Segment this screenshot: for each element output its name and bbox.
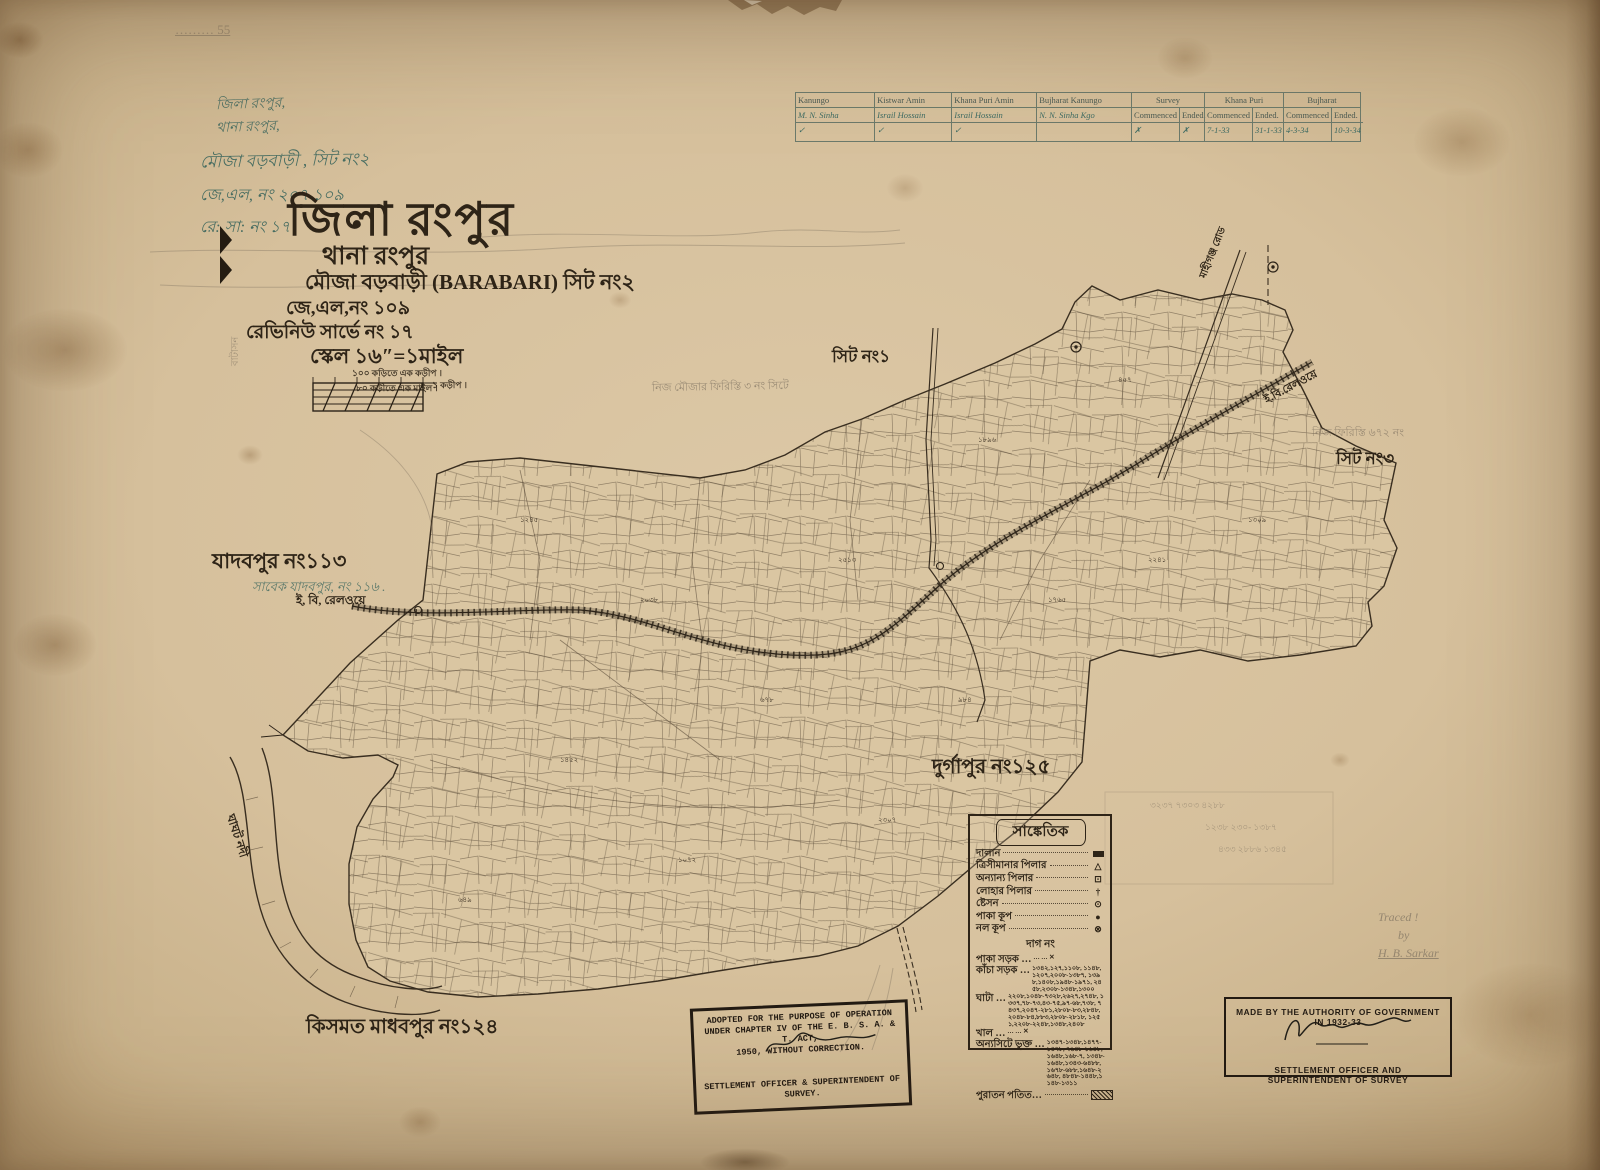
col-mark: [1037, 123, 1131, 137]
col-header: Bujharat Kanungo: [1037, 93, 1131, 108]
dot-leader: [1035, 890, 1088, 891]
legend-item-paved-road: পাকা সড়ক … … … ✕: [976, 955, 1105, 965]
traced-note-line2: by: [1398, 928, 1409, 943]
svg-text:২২৪১: ২২৪১: [1148, 556, 1166, 564]
binding-mark: [220, 256, 232, 284]
pencil-sum-row: ৩২৩৭ ৭৩০৩ ৪২৮৮: [1150, 798, 1225, 813]
col-header: Kanungo: [796, 93, 874, 108]
col-name: Israil Hossain: [952, 108, 1036, 123]
sub-commenced: Commenced: [1284, 108, 1331, 123]
dot-leader: [1002, 903, 1088, 904]
svg-text:২৩০৭: ২৩০৭: [878, 816, 896, 824]
plot-number-list: ১৩৪৭-১৩৪৮,১৪৭৭-১৪৭৮, ৭৬৪৮-১৬৪৮,১৬৪৮,১৬৮-…: [1047, 1040, 1105, 1088]
col-header: Kistwar Amin: [875, 93, 951, 108]
plot-number-list: … … ✕: [1033, 955, 1105, 965]
col-mark: ✓: [875, 123, 951, 137]
left-vertical-note: বাটাসন: [228, 337, 245, 366]
dot-leader: [1009, 928, 1088, 929]
pencil-sum-row: ১২৩৮ ২৩০- ১৩৮৭: [1205, 820, 1277, 835]
kismat-madhabpur-label: কিসমত মাধবপুর নং১২৪: [306, 1012, 498, 1045]
legend-label: অন্যসিটে ভুক্ত …: [976, 1040, 1045, 1088]
traced-note-line1: Traced !: [1378, 910, 1418, 925]
svg-text:৬৪৯: ৬৪৯: [458, 896, 472, 904]
adopted-stamp: ADOPTED FOR THE PURPOSE OF OPERATION UND…: [690, 999, 912, 1114]
legend-label: নল কূপ: [976, 921, 1006, 938]
table-col-khanapuri-phase: Khana Puri Commenced 7-1-33 Ended. 31-1-…: [1204, 92, 1283, 142]
dot-leader: [1050, 865, 1089, 866]
svg-text:১২৪৫: ১২৪৫: [520, 516, 538, 524]
binding-mark: [220, 226, 232, 254]
torn-edge: [728, 0, 842, 15]
building-symbol: [1091, 849, 1105, 859]
phase-header: Bujharat: [1284, 93, 1360, 108]
legend-label: ঘাটা …: [976, 994, 1006, 1028]
svg-text:১৮৯৬: ১৮৯৬: [978, 436, 997, 444]
old-fallow-symbol: [1091, 1090, 1105, 1102]
col-name: N. N. Sinha Kgo: [1037, 108, 1131, 123]
triangle-pillar-symbol: △: [1091, 861, 1105, 872]
col-mark: ✓: [952, 123, 1036, 137]
legend-label: খাল …: [976, 1029, 1005, 1039]
scale-note-1: ১০০ কড়িতে এক কড়ীপ ।: [352, 366, 442, 381]
authority-box: MADE BY THE AUTHORITY OF GOVERNMENT IN 1…: [1224, 997, 1452, 1077]
plot-number-list: … … ✕: [1007, 1029, 1105, 1039]
phase-value: 31-1-33: [1253, 123, 1284, 137]
dot-leader: [1015, 915, 1088, 916]
svg-text:২৫১৩: ২৫১৩: [838, 556, 857, 564]
pencil-note-center: নিজ মৌজার ফিরিস্তি ৩ নং সিটে: [652, 377, 789, 398]
dot-leader: [1045, 1094, 1088, 1095]
handwritten-thana: থানা রংপুর,: [216, 114, 280, 140]
sub-ended: Ended.: [1253, 108, 1284, 123]
phase-header: Khana Puri: [1205, 93, 1283, 108]
plot-number-list: ২২০৮,১০৪৮-৭৩২৮,২৬২৭,২৭৪৮, ১৩৩৭,৭৮-৭৩,৪৩-…: [1008, 994, 1105, 1028]
col-name: Israil Hossain: [875, 108, 951, 123]
sub-ended: Ended.: [1332, 108, 1363, 123]
svg-text:১০৭২: ১০৭২: [678, 856, 696, 864]
pencil-sum-row: ৪৩৩ ২৮৮৬ ১৩৪৫: [1218, 842, 1287, 857]
svg-text:৯৮৪: ৯৮৪: [958, 696, 972, 704]
phase-value: ✗: [1132, 123, 1179, 137]
legend-item-tube-well: নল কূপ ⊗: [976, 924, 1105, 937]
table-col-survey-phase: Survey Commenced ✗ Ended. ✗: [1131, 92, 1204, 142]
scale-note-2: ৮০ কড়ীতে এক মাইল ।: [356, 381, 438, 396]
svg-text:২০৩৮: ২০৩৮: [640, 596, 659, 604]
dot-leader: [1036, 877, 1088, 878]
sheet-1-label: সিট নং১: [832, 344, 890, 372]
sheet-3-label: সিট নং৩: [1336, 446, 1394, 474]
legend-box: সাঙ্কেতিক দালান ত্রিসীমানার পিলার △ অন্য…: [968, 814, 1112, 1050]
authority-line: MADE BY THE AUTHORITY OF GOVERNMENT IN 1…: [1232, 1007, 1444, 1027]
legend-item-canal: খাল … … … ✕: [976, 1029, 1105, 1039]
legend-item-path: ঘাটা … ২২০৮,১০৪৮-৭৩২৮,২৬২৭,২৭৪৮, ১৩৩৭,৭৮…: [976, 994, 1105, 1028]
legend-item-unpaved-road: কাঁচা সড়ক … ১৩৪২,১২৭,১১০৮, ১১৪৮,১২০৭,২০…: [976, 966, 1105, 993]
legend-item-old-fallow: পুরাতন পতিত…: [976, 1090, 1105, 1103]
svg-text:৪৫৭: ৪৫৭: [1118, 376, 1132, 384]
svg-text:৬৭৮: ৬৭৮: [760, 696, 774, 704]
sub-commenced: Commenced: [1205, 108, 1252, 123]
scale-bar-unit-label: ১ কড়ীপ ।: [432, 378, 467, 393]
durgapur-label: দুর্গাপুর নং১২৫: [932, 752, 1051, 785]
sub-commenced: Commenced: [1132, 108, 1179, 123]
legend-label: পাকা সড়ক …: [976, 955, 1031, 965]
dot-leader: [1003, 852, 1088, 853]
handwritten-mouza: মৌজা বড়বাড়ী , সিট নং২: [200, 147, 370, 178]
table-col-bujharat-kanungo: Bujharat Kanungo N. N. Sinha Kgo: [1036, 92, 1131, 142]
phase-value: 10-3-34: [1332, 123, 1363, 137]
svg-text:১৪৫২: ১৪৫২: [560, 756, 578, 764]
col-header: Khana Puri Amin: [952, 93, 1036, 108]
authority-signature-space: [1232, 1027, 1444, 1065]
svg-text:১৩০৯: ১৩০৯: [1248, 516, 1267, 524]
traced-note-line3: H. B. Sarkar: [1378, 946, 1439, 961]
map-sheet: ১২৪৫ ২০৩৮ ৬৭৮ ১৪৫২ ২৩০৭ ৯৮৪ ১৭৬৫ ২২৪১ ১৩…: [0, 0, 1600, 1170]
railway-label-left: ই, বি, রেলওয়ে: [296, 592, 366, 612]
pencil-note-right: নিজ ফিরিস্তি ৬৭২ নং: [1312, 424, 1404, 443]
table-col-khanapuri-amin: Khana Puri Amin Israil Hossain ✓: [951, 92, 1036, 142]
table-col-kistwar-amin: Kistwar Amin Israil Hossain ✓: [874, 92, 951, 142]
table-col-kanungo: Kanungo M. N. Sinha ✓: [795, 92, 874, 142]
legend-dag-no-heading: দাগ নং: [976, 937, 1105, 954]
phase-value: 7-1-33: [1205, 123, 1252, 137]
col-mark: ✓: [796, 123, 874, 137]
authority-line: SETTLEMENT OFFICER AND SUPERINTENDENT OF…: [1232, 1065, 1444, 1085]
handwritten-rs-no: রে: সা: নং ১৭: [200, 214, 290, 241]
square-pillar-symbol: ⊡: [1091, 874, 1105, 885]
legend-label: কাঁচা সড়ক …: [976, 966, 1030, 993]
legend-title: সাঙ্কেতিক: [996, 819, 1086, 846]
jadabpur-label: যাদবপুর নং১১৩: [212, 545, 346, 580]
station-symbol: ⊙: [1091, 899, 1105, 910]
survey-progress-table: Kanungo M. N. Sinha ✓ Kistwar Amin Israi…: [795, 92, 1361, 142]
iron-pillar-symbol: †: [1091, 887, 1105, 897]
legend-item-other-sheet: অন্যসিটে ভুক্ত … ১৩৪৭-১৩৪৮,১৪৭৭-১৪৭৮, ৭৬…: [976, 1040, 1105, 1088]
plot-number-list: ১৩৪২,১২৭,১১০৮, ১১৪৮,১২০৭,২০০৮-১৩৮৭, ১৩৯৮…: [1032, 966, 1105, 993]
tube-well-symbol: ⊗: [1091, 924, 1105, 935]
phase-value: 4-3-34: [1284, 123, 1331, 137]
table-col-bujharat-phase: Bujharat Commenced 4-3-34 Ended. 10-3-34: [1283, 92, 1361, 142]
paved-well-symbol: ●: [1091, 912, 1105, 922]
corner-pencil-note: ……… 55: [175, 22, 230, 38]
phase-header: Survey: [1132, 93, 1204, 108]
svg-text:১৭৬৫: ১৭৬৫: [1048, 596, 1066, 604]
col-name: M. N. Sinha: [796, 108, 874, 123]
legend-label: পুরাতন পতিত…: [976, 1088, 1042, 1105]
